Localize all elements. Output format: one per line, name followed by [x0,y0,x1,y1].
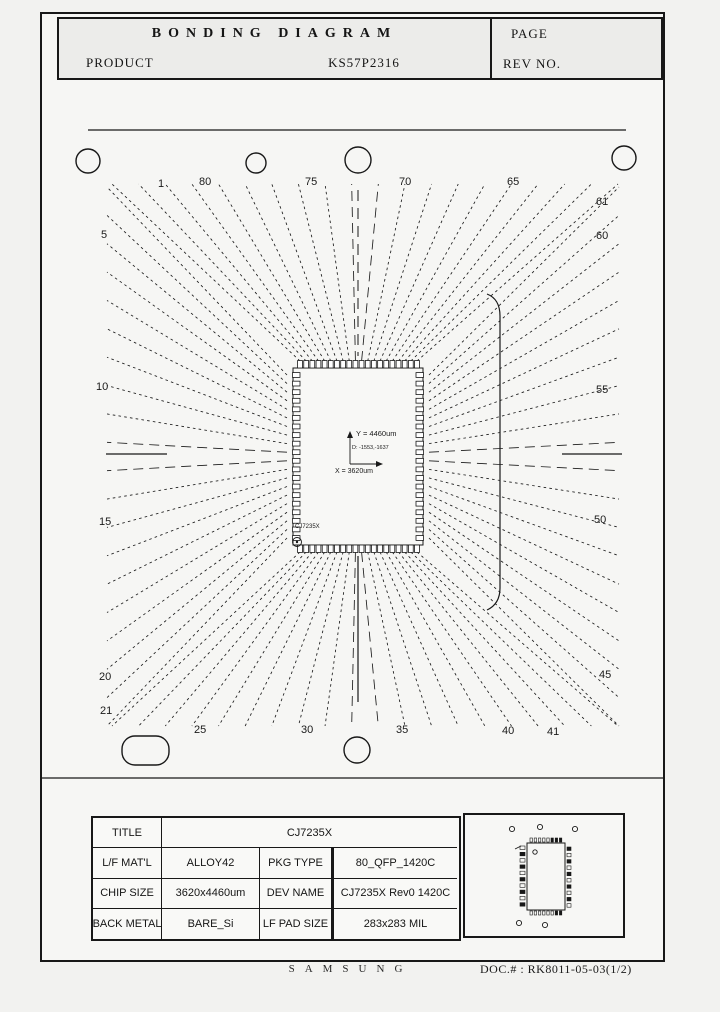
dev-name-label: DEV NAME [260,879,332,909]
alignment-target-circle [612,146,636,170]
title-value: CJ7235X [162,818,457,848]
alignment-target-circle [76,149,100,173]
alignment-target-stadium [122,736,169,765]
back-metal-value: BARE_Si [162,909,260,939]
dev-name-value: CJ7235X Rev0 1420C [332,879,457,909]
lf-matl-label: L/F MAT'L [93,848,162,878]
lf-pad-size-label: LF PAD SIZE [260,909,332,939]
title-label: TITLE [93,818,162,848]
pkg-type-label: PKG TYPE [260,848,332,878]
pkg-type-value: 80_QFP_1420C [332,848,457,878]
chip-size-label: CHIP SIZE [93,879,162,909]
chip-x-dimension: X = 3620um [335,468,373,475]
bonding-diagram-page: BONDING DIAGRAM PRODUCT KS57P2316 PAGE R… [0,0,720,1012]
lf-pad-size-value: 283x283 MIL [332,909,457,939]
chip-ref-coordinates: D: -1553,-1637 [352,445,389,451]
doc-number: DOC.# : RK8011-05-03(1/2) [480,962,632,977]
lf-matl-value: ALLOY42 [162,848,260,878]
alignment-target-circle [344,737,370,763]
chip-name-label: CJ7235X [295,524,320,530]
chip-size-value: 3620x4460um [162,879,260,909]
chip-y-dimension: Y = 4460um [356,429,397,438]
device-info-table: TITLE CJ7235X L/F MAT'L ALLOY42 PKG TYPE… [91,816,461,941]
alignment-target-circle [345,147,371,173]
mini-package-icon [465,815,623,936]
back-metal-label: BACK METAL [93,909,162,939]
package-thumbnail-box [463,813,625,938]
alignment-target-circle [246,153,266,173]
